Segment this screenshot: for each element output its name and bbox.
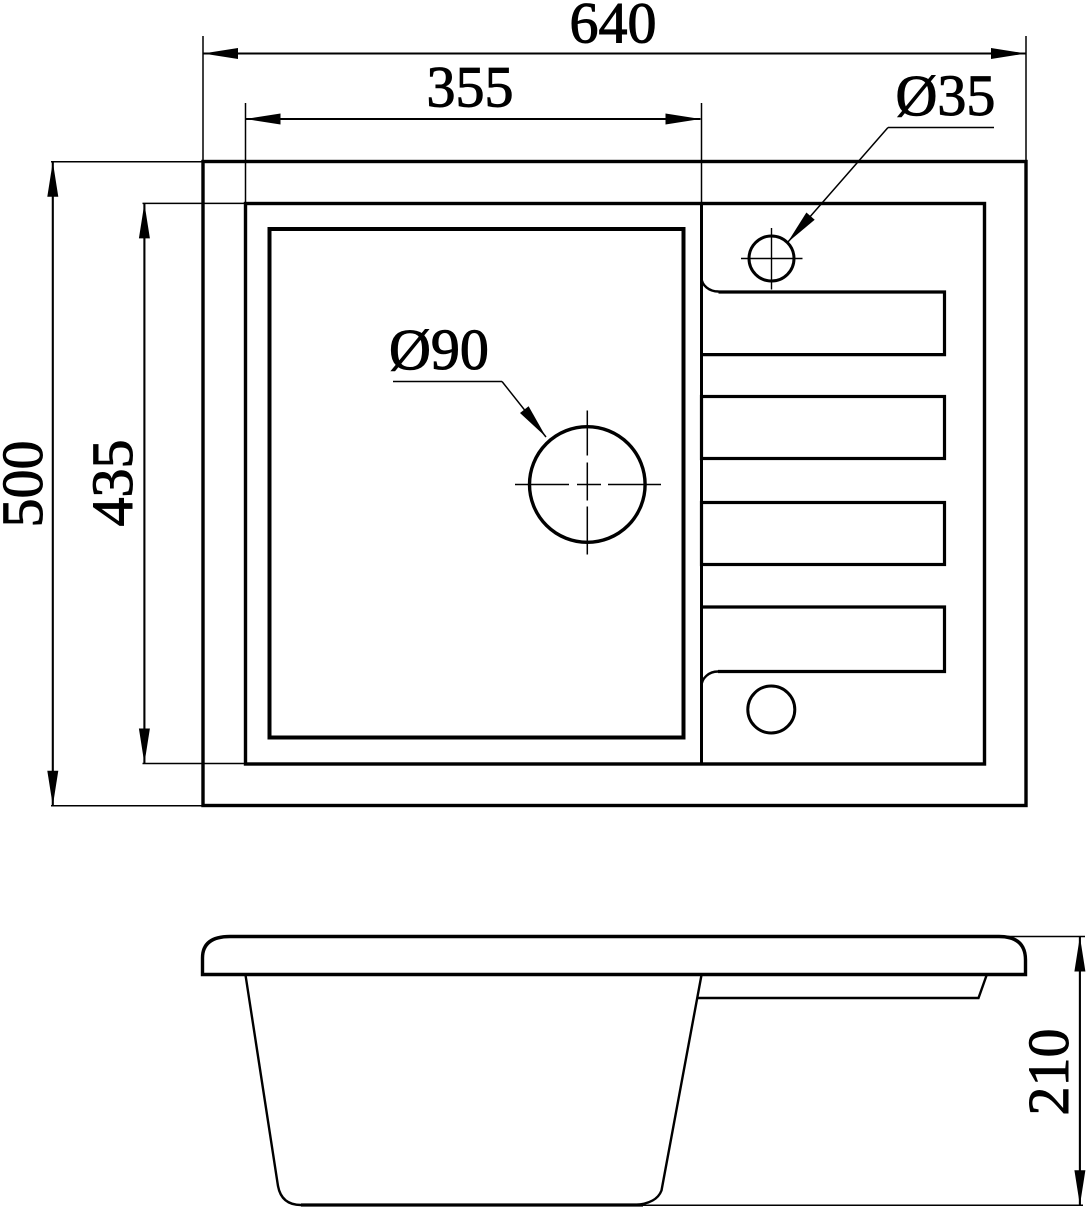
svg-text:500: 500	[0, 441, 55, 528]
svg-text:355: 355	[427, 55, 514, 120]
svg-text:Ø35: Ø35	[896, 63, 996, 128]
svg-text:Ø90: Ø90	[389, 317, 489, 382]
svg-text:435: 435	[80, 440, 145, 527]
svg-text:640: 640	[570, 0, 657, 56]
svg-text:210: 210	[1016, 1029, 1081, 1116]
